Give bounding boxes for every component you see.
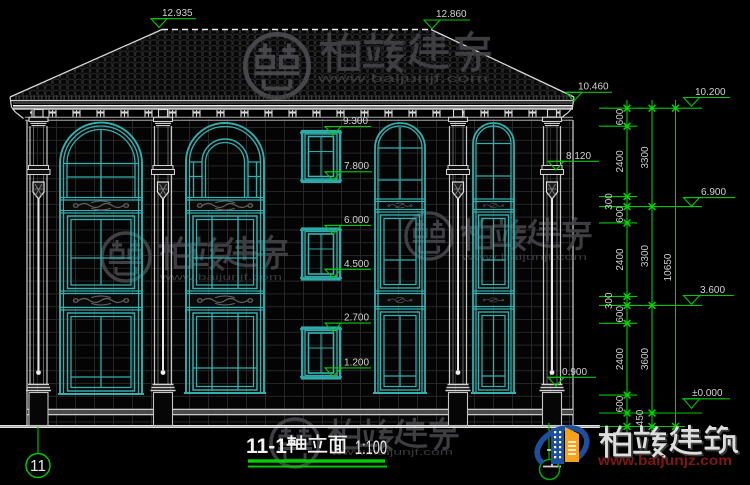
svg-text:7.800: 7.800 — [344, 161, 369, 172]
svg-text:600: 600 — [615, 306, 626, 323]
svg-text:www.baijunjf.com: www.baijunjf.com — [329, 447, 453, 458]
svg-text:www.baijunjf.com: www.baijunjf.com — [460, 252, 587, 263]
svg-text:2400: 2400 — [615, 150, 626, 173]
svg-text:300: 300 — [604, 292, 615, 309]
svg-text:1:100: 1:100 — [355, 438, 387, 459]
svg-text:600: 600 — [615, 395, 626, 412]
svg-text:1.200: 1.200 — [344, 358, 369, 369]
svg-text:www.baijunjf.com: www.baijunjf.com — [316, 73, 488, 85]
svg-text:11-1: 11-1 — [246, 435, 287, 458]
svg-text:10.200: 10.200 — [695, 87, 726, 98]
svg-text:11: 11 — [30, 458, 46, 475]
svg-text:2400: 2400 — [615, 347, 626, 370]
svg-text:600: 600 — [615, 206, 626, 223]
svg-text:www.baijunjz.com: www.baijunjz.com — [597, 453, 732, 468]
svg-text:3.600: 3.600 — [700, 285, 725, 296]
svg-text:3600: 3600 — [640, 347, 651, 370]
svg-text:0.900: 0.900 — [562, 367, 587, 378]
svg-text:±0.000: ±0.000 — [692, 388, 723, 399]
svg-text:10650: 10650 — [663, 253, 674, 281]
svg-text:12.860: 12.860 — [436, 9, 467, 20]
svg-text:450: 450 — [635, 409, 646, 426]
svg-text:600: 600 — [615, 108, 626, 125]
svg-text:300: 300 — [604, 193, 615, 210]
svg-text:6.900: 6.900 — [701, 187, 726, 198]
svg-text:2400: 2400 — [615, 248, 626, 271]
svg-text:12.935: 12.935 — [162, 8, 193, 19]
svg-text:6.000: 6.000 — [344, 215, 369, 226]
svg-text:3300: 3300 — [640, 146, 651, 169]
svg-text:3300: 3300 — [640, 244, 651, 267]
svg-text:10.460: 10.460 — [578, 82, 609, 93]
svg-text:2.700: 2.700 — [344, 313, 369, 324]
svg-text:4.500: 4.500 — [344, 259, 369, 270]
svg-text:9.300: 9.300 — [343, 116, 368, 127]
svg-text:8.120: 8.120 — [566, 151, 591, 162]
